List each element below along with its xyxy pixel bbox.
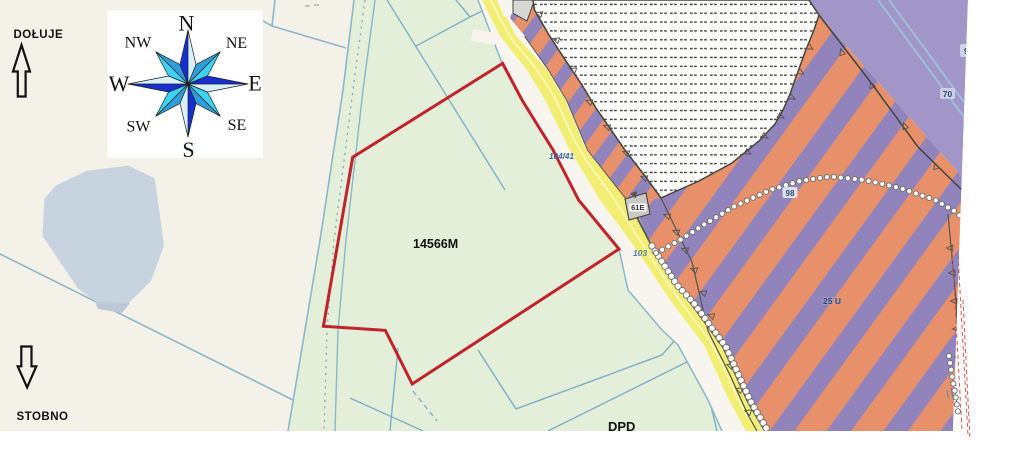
svg-text:SE: SE xyxy=(228,117,247,134)
svg-text:104/41: 104/41 xyxy=(549,152,574,161)
svg-text:E: E xyxy=(248,71,261,96)
svg-text:SW: SW xyxy=(127,119,152,136)
svg-text:S: S xyxy=(182,137,194,162)
svg-text:103: 103 xyxy=(633,248,647,258)
svg-text:STOBNO: STOBNO xyxy=(17,411,69,423)
svg-text:N: N xyxy=(179,11,195,36)
svg-text:14566M: 14566M xyxy=(413,237,458,251)
svg-text:NW: NW xyxy=(125,35,153,52)
svg-text:NE: NE xyxy=(226,35,247,52)
svg-text:25 U: 25 U xyxy=(823,296,841,306)
svg-text:98: 98 xyxy=(786,189,795,198)
svg-text:W: W xyxy=(109,71,130,96)
svg-text:70: 70 xyxy=(943,89,953,99)
svg-text:61E: 61E xyxy=(631,203,644,212)
svg-text:DOŁUJE: DOŁUJE xyxy=(14,29,64,41)
